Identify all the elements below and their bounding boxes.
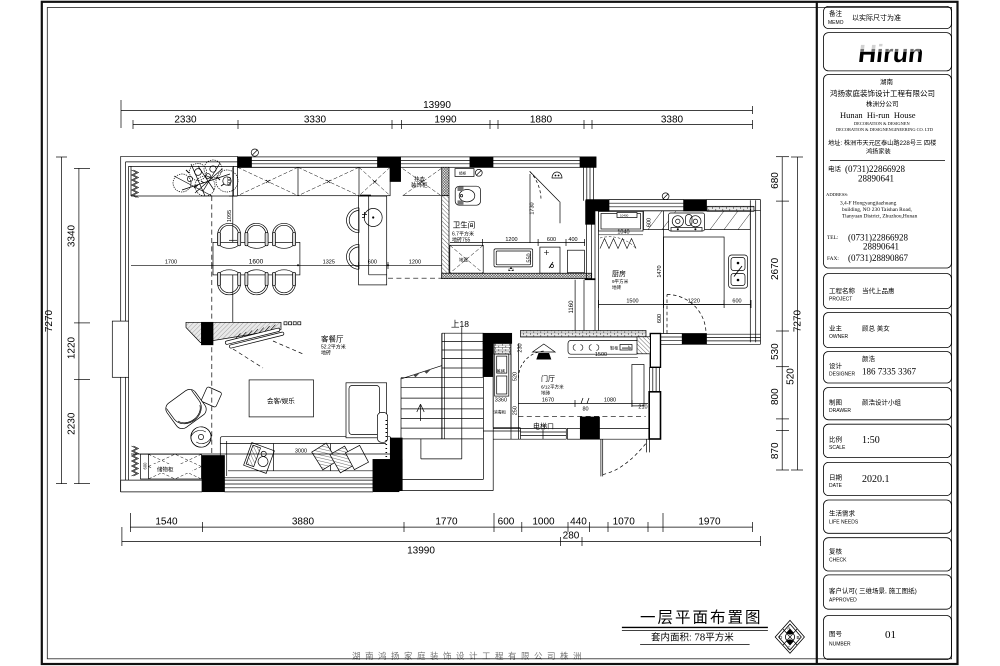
svg-text:蒸烤: 蒸烤 <box>497 368 505 375</box>
svg-text:(0731)22866928: (0731)22866928 <box>845 164 905 174</box>
svg-text:230: 230 <box>518 343 524 352</box>
svg-text:Tianyuan District, Zhuzhou,Hun: Tianyuan District, Zhuzhou,Hunan <box>842 214 918 220</box>
svg-text:株洲分公司: 株洲分公司 <box>866 99 899 108</box>
svg-text:当代上品惠: 当代上品惠 <box>862 286 895 295</box>
svg-text:图号: 图号 <box>829 630 843 638</box>
svg-text:DECORATION & DESIGNEN: DECORATION & DESIGNEN <box>854 121 910 126</box>
svg-text:制图: 制图 <box>829 398 842 407</box>
svg-text:鞋柜: 鞋柜 <box>610 345 618 352</box>
svg-text:地漏: 地漏 <box>459 257 468 264</box>
svg-text:电话: 电话 <box>828 164 842 173</box>
svg-text:1220: 1220 <box>688 299 700 305</box>
svg-text:DATE: DATE <box>829 483 843 489</box>
svg-text:顾总 美女: 顾总 美女 <box>862 324 890 333</box>
svg-text:250: 250 <box>512 406 518 415</box>
svg-text:鸿扬家装: 鸿扬家装 <box>866 148 891 156</box>
svg-text:颜浩: 颜浩 <box>862 354 876 363</box>
svg-text:7270: 7270 <box>44 309 55 332</box>
svg-text:备注: 备注 <box>829 9 843 18</box>
svg-text:1880: 1880 <box>530 114 553 125</box>
svg-text:1670: 1670 <box>542 398 554 404</box>
svg-text:1770: 1770 <box>435 517 458 528</box>
svg-text:440: 440 <box>570 517 587 528</box>
svg-text:1:50: 1:50 <box>862 435 880 446</box>
svg-text:1200: 1200 <box>505 237 517 243</box>
svg-text:SCALE: SCALE <box>829 445 846 451</box>
svg-text:LIFE NEEDS: LIFE NEEDS <box>829 520 859 526</box>
svg-text:1990: 1990 <box>434 114 457 125</box>
svg-text:600: 600 <box>732 299 741 305</box>
svg-text:280: 280 <box>563 531 580 542</box>
svg-text:PROJECT: PROJECT <box>829 297 852 303</box>
svg-text:6/12平方米: 6/12平方米 <box>541 384 564 391</box>
svg-text:业主: 业主 <box>829 324 843 333</box>
svg-text:卫生间: 卫生间 <box>453 220 476 230</box>
svg-text:210: 210 <box>638 405 647 411</box>
svg-text:APPROVED: APPROVED <box>829 598 857 604</box>
svg-text:2230: 2230 <box>67 412 78 435</box>
svg-text:湖南: 湖南 <box>880 77 894 86</box>
svg-text:颜浩设计小组: 颜浩设计小组 <box>862 398 902 407</box>
svg-text:湖南鸿扬家庭装饰设计工程有限公司株洲: 湖南鸿扬家庭装饰设计工程有限公司株洲 <box>352 651 586 661</box>
svg-text:TEL:: TEL: <box>827 235 839 241</box>
svg-text:600: 600 <box>657 314 663 323</box>
svg-text:设计: 设计 <box>829 361 843 370</box>
svg-text:一层平面布置图: 一层平面布置图 <box>640 609 763 627</box>
svg-text:消毒柜: 消毒柜 <box>494 409 507 416</box>
svg-text:会客/娱乐: 会客/娱乐 <box>267 396 295 405</box>
svg-text:1000: 1000 <box>532 517 555 528</box>
svg-text:厨房: 厨房 <box>612 269 626 278</box>
svg-text:1160: 1160 <box>569 300 575 314</box>
svg-text:2020.1: 2020.1 <box>862 474 890 485</box>
svg-text:3330: 3330 <box>304 114 327 125</box>
svg-text:6.7平方米: 6.7平方米 <box>452 231 474 238</box>
svg-text:1970: 1970 <box>698 517 721 528</box>
svg-text:镜柜: 镜柜 <box>459 171 467 176</box>
svg-text:1730: 1730 <box>530 202 536 214</box>
svg-text:地址: 株洲市天元区泰山路228号三 四楼: 地址: 株洲市天元区泰山路228号三 四楼 <box>828 139 936 147</box>
svg-text:3380: 3380 <box>661 114 684 125</box>
svg-text:复核: 复核 <box>829 547 843 556</box>
svg-text:电梯口: 电梯口 <box>533 422 554 431</box>
svg-text:7270: 7270 <box>793 309 804 332</box>
svg-text:3880: 3880 <box>292 517 315 528</box>
svg-text:Hunan Hi-run House: Hunan Hi-run House <box>840 110 916 120</box>
svg-text:1600: 1600 <box>249 258 264 265</box>
svg-text:2330: 2330 <box>174 114 197 125</box>
svg-text:上18: 上18 <box>451 319 469 329</box>
svg-text:1200: 1200 <box>409 259 421 265</box>
svg-text:186 7335 3367: 186 7335 3367 <box>862 367 917 377</box>
svg-text:门厅: 门厅 <box>541 374 555 383</box>
svg-text:1470: 1470 <box>657 265 663 277</box>
svg-text:3,4-F Hongyangjiazhuang: 3,4-F Hongyangjiazhuang <box>840 201 897 207</box>
svg-text:400: 400 <box>568 237 577 243</box>
svg-text:550: 550 <box>527 253 533 262</box>
svg-text:building, NO 230 Taishan Road,: building, NO 230 Taishan Road, <box>842 207 913 213</box>
svg-text:520: 520 <box>786 368 797 385</box>
svg-text:地砖: 地砖 <box>541 390 551 397</box>
svg-text:600: 600 <box>143 462 148 470</box>
svg-text:600: 600 <box>368 259 377 265</box>
svg-text:3360: 3360 <box>495 398 507 404</box>
svg-text:日期: 日期 <box>829 474 843 482</box>
svg-text:装饰柜: 装饰柜 <box>411 181 428 189</box>
svg-text:以实际尺寸为准: 以实际尺寸为准 <box>852 13 901 22</box>
svg-text:套内面积: 78平方米: 套内面积: 78平方米 <box>651 632 734 644</box>
svg-text:600: 600 <box>498 517 515 528</box>
svg-text:680: 680 <box>770 172 781 189</box>
svg-text:储物柜: 储物柜 <box>157 466 174 474</box>
svg-text:600: 600 <box>547 237 556 243</box>
svg-text:600: 600 <box>647 218 653 227</box>
svg-text:DECORATION & DESIGNENGINEERING: DECORATION & DESIGNENGINEERING CO. LTD <box>836 127 933 132</box>
svg-text:80: 80 <box>582 407 588 413</box>
svg-text:1095: 1095 <box>227 210 233 222</box>
svg-text:1220: 1220 <box>67 336 78 359</box>
svg-text:1070: 1070 <box>613 517 636 528</box>
svg-text:600: 600 <box>227 177 233 186</box>
svg-text:生活需求: 生活需求 <box>829 509 856 518</box>
svg-text:(0731)28890867: (0731)28890867 <box>848 253 908 263</box>
svg-text:比例: 比例 <box>829 435 842 444</box>
svg-text:9平方米: 9平方米 <box>612 278 629 285</box>
svg-text:1080: 1080 <box>604 398 616 404</box>
svg-text:3000: 3000 <box>295 448 307 454</box>
svg-text:OWNER: OWNER <box>829 334 849 340</box>
svg-text:1500: 1500 <box>595 352 607 358</box>
svg-text:530: 530 <box>770 343 781 360</box>
svg-text:2670: 2670 <box>770 257 781 280</box>
svg-text:地砖: 地砖 <box>321 350 331 357</box>
svg-text:1700: 1700 <box>165 259 177 265</box>
svg-text:520: 520 <box>512 372 518 381</box>
svg-text:NUMBER: NUMBER <box>829 642 851 648</box>
svg-text:客餐厅: 客餐厅 <box>321 334 344 344</box>
svg-text:DRAWER: DRAWER <box>829 408 851 414</box>
svg-text:28890641: 28890641 <box>863 242 899 252</box>
svg-text:3340: 3340 <box>67 224 78 247</box>
svg-text:13990: 13990 <box>407 546 435 557</box>
svg-text:870: 870 <box>770 442 781 459</box>
svg-text:地砖: 地砖 <box>612 284 622 291</box>
svg-text:MEMO: MEMO <box>828 20 844 26</box>
svg-text:1540: 1540 <box>155 517 178 528</box>
svg-text:13990: 13990 <box>423 100 451 111</box>
svg-text:28890641: 28890641 <box>858 174 894 184</box>
svg-text:ADDRESS:: ADDRESS: <box>826 192 848 197</box>
svg-text:DESIGNER: DESIGNER <box>829 372 856 378</box>
svg-text:鸿扬家庭装饰设计工程有限公司: 鸿扬家庭装饰设计工程有限公司 <box>830 88 935 98</box>
svg-text:800: 800 <box>770 388 781 405</box>
svg-text:1325: 1325 <box>323 259 335 265</box>
svg-text:工程名称: 工程名称 <box>829 286 856 295</box>
svg-text:01: 01 <box>885 629 896 641</box>
svg-text:10400: 10400 <box>620 214 629 218</box>
svg-text:挂衣: 挂衣 <box>414 175 426 183</box>
svg-text:B: B <box>797 635 800 640</box>
svg-text:1500: 1500 <box>626 299 638 305</box>
svg-text:52.2平方米: 52.2平方米 <box>321 344 346 351</box>
svg-text:FAX:: FAX: <box>827 256 839 262</box>
svg-text:CHECK: CHECK <box>829 558 847 564</box>
svg-text:客户认可( 三维场景, 施工图纸): 客户认可( 三维场景, 施工图纸) <box>829 586 917 595</box>
